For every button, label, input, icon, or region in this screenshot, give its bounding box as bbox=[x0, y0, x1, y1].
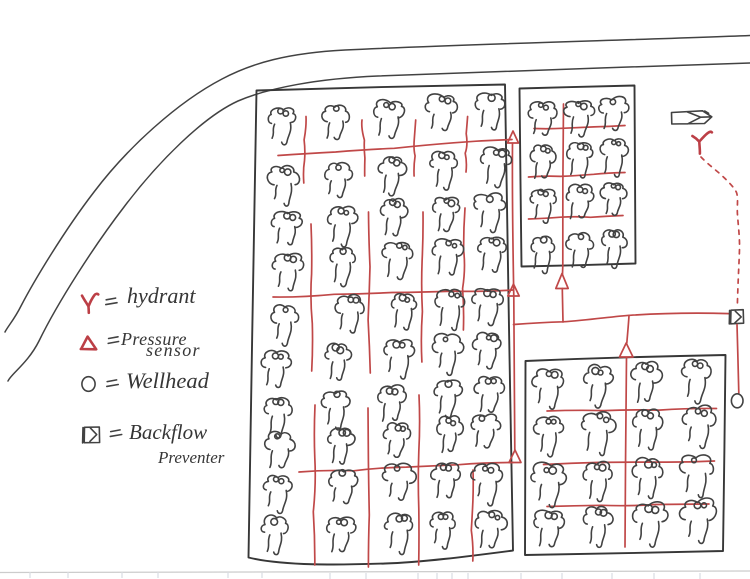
svg-text:sensor: sensor bbox=[146, 340, 201, 360]
svg-text:hydrant: hydrant bbox=[127, 283, 196, 308]
svg-text:Backflow: Backflow bbox=[129, 420, 207, 444]
svg-text:Preventer: Preventer bbox=[157, 448, 225, 467]
svg-text:Wellhead: Wellhead bbox=[126, 368, 210, 393]
